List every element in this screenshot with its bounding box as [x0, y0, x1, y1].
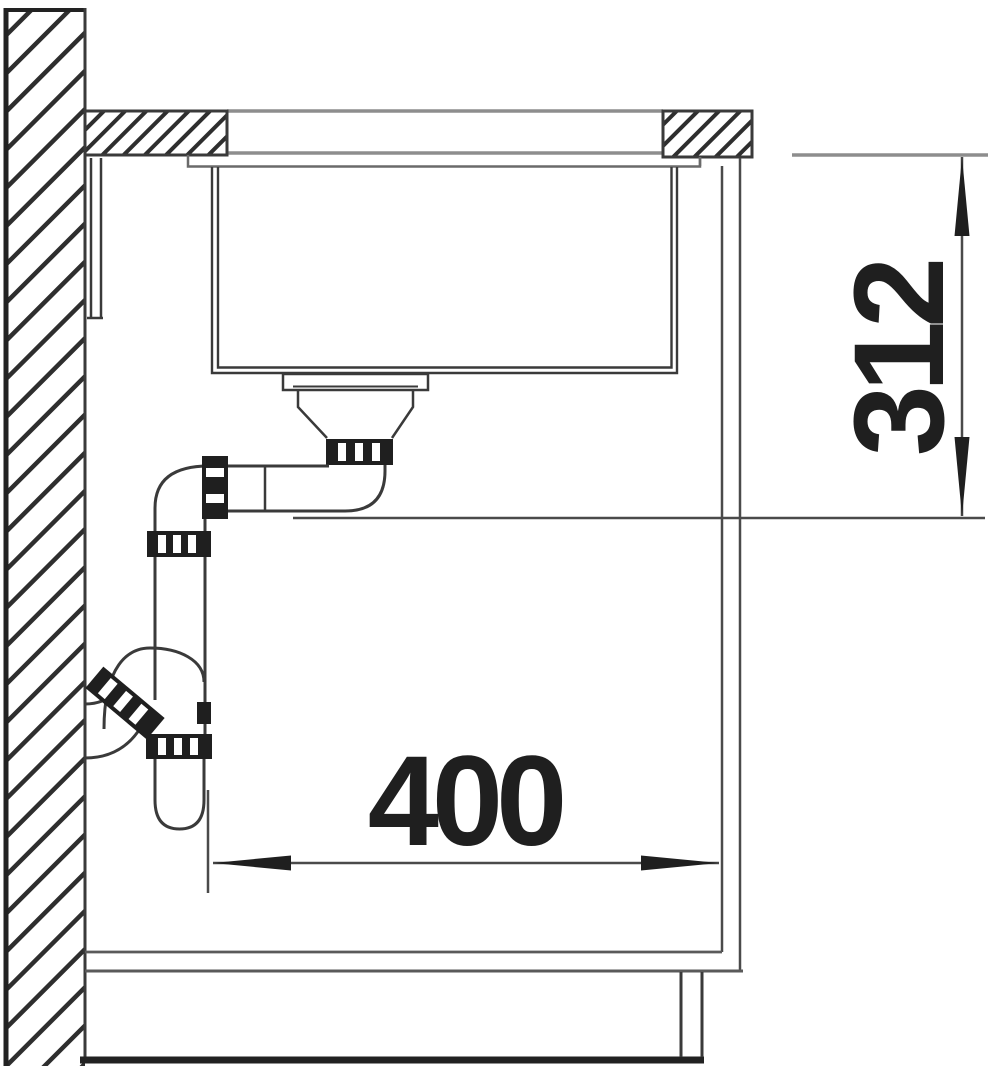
countertop-right-section — [663, 111, 752, 157]
nut-slot — [188, 535, 196, 553]
nut-slot — [158, 738, 166, 755]
nut-slot — [206, 468, 224, 477]
dimension-horizontal: 400 — [208, 730, 719, 893]
dim-400-arrow-right — [641, 856, 719, 871]
nut-body — [202, 456, 228, 519]
drawing-canvas: 400 312 — [0, 0, 992, 1067]
sink-installation-section-drawing: 400 312 — [0, 0, 992, 1067]
drain-cup-right-wall — [392, 390, 413, 438]
dimension-vertical-label: 312 — [828, 261, 971, 456]
pipe-coupling-nut-vertical — [202, 456, 228, 519]
countertop — [85, 111, 752, 157]
trap-clip — [197, 702, 211, 724]
wall-hatching — [4, 8, 85, 1066]
collar-thread-slot — [338, 443, 346, 461]
tailpiece-elbow-outer-wall — [211, 465, 385, 511]
drain-flange-plate — [283, 374, 428, 390]
wall-section — [4, 8, 85, 1066]
collar-thread-slot — [355, 443, 363, 461]
sink-rim — [188, 155, 700, 167]
dim-312-arrow-up — [955, 157, 970, 236]
dim-400-arrow-left — [213, 856, 291, 871]
pipe-coupling-nut-horizontal — [147, 531, 211, 557]
p-trap — [85, 648, 212, 829]
drain-assembly — [283, 374, 428, 465]
collar-thread-slot — [372, 443, 380, 461]
dimension-vertical: 312 — [293, 155, 988, 518]
trap-wall-outlet-bottom — [85, 727, 141, 758]
dimension-horizontal-label: 400 — [368, 730, 562, 873]
sink-bowl-inner-wall — [218, 167, 672, 368]
nut-slot — [173, 535, 181, 553]
left-elbow-outer-wall — [155, 466, 209, 532]
cabinet — [85, 157, 743, 1057]
sink-bowl-outer-wall — [212, 167, 677, 373]
trap-bulb — [155, 759, 204, 829]
sink — [188, 155, 700, 373]
wall-batten — [87, 158, 103, 318]
waste-pipe — [147, 456, 385, 734]
nut-slot — [206, 494, 224, 503]
nut-slot — [174, 738, 182, 755]
trap-union-nut — [146, 734, 212, 759]
drain-cup-left-wall — [298, 390, 327, 438]
countertop-left-section — [85, 111, 227, 155]
nut-slot — [158, 535, 166, 553]
nut-slot — [190, 738, 198, 755]
